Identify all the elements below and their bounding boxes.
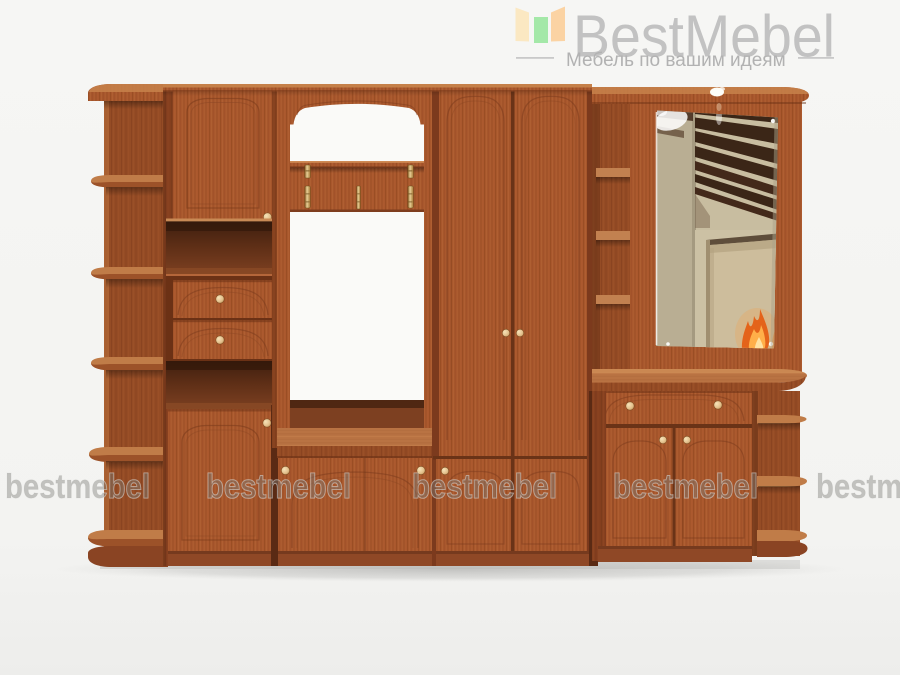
svg-text:bestmebel: bestmebel [412, 468, 557, 506]
svg-text:Мебель по вашим идеям: Мебель по вашим идеям [566, 50, 786, 71]
svg-text:bestmebel: bestmebel [613, 468, 758, 506]
svg-text:bestmebel: bestmebel [5, 468, 150, 506]
svg-text:bestmebel: bestmebel [206, 468, 351, 506]
svg-text:bestmebel: bestmebel [816, 468, 900, 506]
